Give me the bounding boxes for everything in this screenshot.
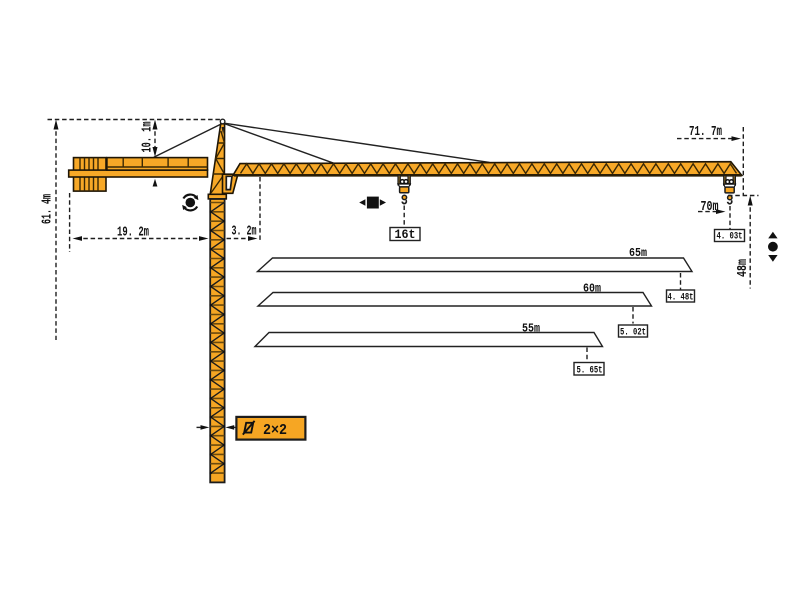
svg-text:55m: 55m xyxy=(522,322,540,336)
svg-text:70m: 70m xyxy=(701,199,719,215)
svg-text:19. 2m: 19. 2m xyxy=(117,225,149,241)
svg-text:10. 1m: 10. 1m xyxy=(140,122,156,153)
svg-text:16t: 16t xyxy=(395,227,416,242)
svg-text:5. 02t: 5. 02t xyxy=(620,327,646,339)
svg-text:60m: 60m xyxy=(583,282,601,296)
svg-text:71. 7m: 71. 7m xyxy=(689,124,722,140)
svg-text:61. 4m: 61. 4m xyxy=(40,194,56,224)
svg-text:4. 03t: 4. 03t xyxy=(717,231,743,243)
svg-text:5. 65t: 5. 65t xyxy=(577,365,603,377)
svg-text:65m: 65m xyxy=(629,246,647,260)
svg-text:3. 2m: 3. 2m xyxy=(232,224,257,240)
svg-text:48m: 48m xyxy=(736,259,751,277)
svg-text:2×2: 2×2 xyxy=(263,422,287,439)
svg-text:4. 48t: 4. 48t xyxy=(668,291,694,303)
